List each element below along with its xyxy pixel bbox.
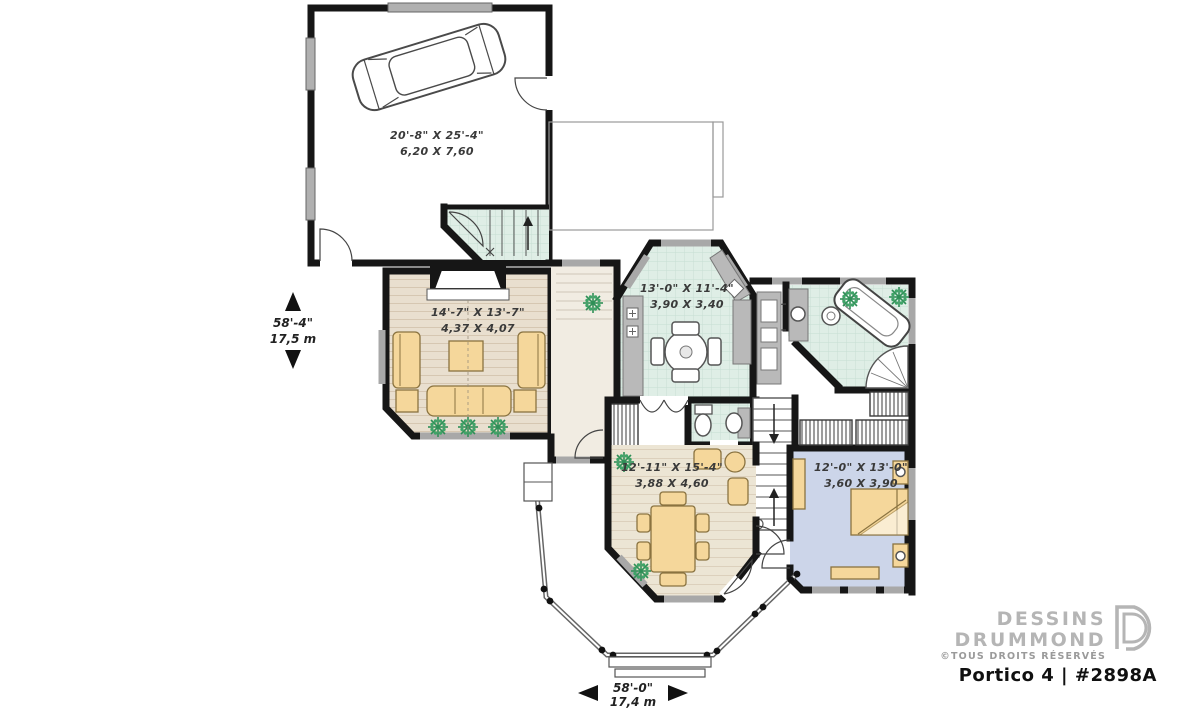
veranda-steps [609,657,711,667]
dining-dim-imperial: 12'-11" X 15'-4" [621,461,723,474]
living-dim-imperial: 14'-7" X 13'-7" [431,306,525,319]
kitchen-dim-imperial: 13'-0" X 11'-4" [640,282,734,295]
garage-window [306,38,315,90]
armchair [518,332,545,388]
entry-vestibule [444,207,549,262]
veranda-steps [615,669,705,677]
armchair [393,332,420,388]
bath-sink [791,307,805,321]
chair [696,514,709,532]
depth-imperial: 58'-4" [273,316,313,330]
side-table [396,390,418,412]
kitchen-counter [733,300,751,364]
patio-outline [549,122,723,230]
garage-side-door [320,229,352,261]
car-icon [349,20,510,114]
chair [660,492,686,505]
dimension-left: 58'-4" 17,5 m [270,292,316,369]
plan-title: Portico 4 | #2898A [959,665,1157,686]
bench [831,567,879,579]
dimension-arrow-icon [285,292,301,311]
toilet [695,405,712,436]
dining-dim-metric: 3,88 X 4,60 [635,477,709,490]
sofa [427,386,511,416]
chair [637,542,650,560]
plant-icon [583,293,603,313]
living-dim-metric: 4,37 X 4,07 [440,322,515,335]
plant-icon [488,417,508,437]
side-steps [524,463,552,501]
dimension-arrow-icon [668,685,688,701]
width-imperial: 58'-0" [613,681,653,695]
chair [660,573,686,586]
fireplace [427,264,509,300]
floor-plan-page: 20'-8" X 25'-4" 6,20 X 7,60 [0,0,1200,711]
lounge-chair [728,478,748,505]
round-side-table [725,452,745,472]
pedestal-sink [822,307,840,325]
bedroom-closet [800,392,908,445]
plant-icon [889,287,909,307]
bedroom-dim-imperial: 12'-0" X 13'-0" [814,461,908,474]
garage-door [388,3,492,12]
floor-plan-canvas: 20'-8" X 25'-4" 6,20 X 7,60 [0,0,1200,711]
width-metric: 17,4 m [610,695,656,709]
garage-house-door [515,78,547,110]
dimension-bottom: 58'-0" 17,4 m [578,681,688,709]
logo-rights: ©TOUS DROITS RÉSERVÉS [940,650,1106,662]
depth-metric: 17,5 m [270,332,316,346]
living-room: 14'-7" X 13'-7" 4,37 X 4,07 [382,264,551,437]
chair [651,338,664,365]
dimension-arrow-icon [578,685,598,701]
chair [672,322,699,335]
bed [851,489,908,535]
drummond-d-icon [1117,607,1149,649]
bedroom-dim-metric: 3,60 X 3,90 [824,477,898,490]
garage-dim-metric: 6,20 X 7,60 [400,145,474,158]
chair [672,369,699,382]
nightstand [893,544,908,567]
logo-line1: DESSINS [997,608,1106,630]
chair [637,514,650,532]
chair [696,542,709,560]
chair [708,338,721,365]
coffee-table [449,341,483,371]
side-table [514,390,536,412]
plant-icon [631,561,651,581]
dresser [793,459,805,509]
company-logo: DESSINS DRUMMOND ©TOUS DROITS RÉSERVÉS P… [940,607,1157,686]
dimension-arrow-icon [285,350,301,369]
pantry-shelves [757,292,781,384]
logo-line2: DRUMMOND [955,629,1106,651]
plant-icon [428,417,448,437]
garage-window [306,168,315,220]
plant-icon [840,289,860,309]
kitchen-dim-metric: 3,90 X 3,40 [650,298,724,311]
dining-table [651,506,695,572]
garage-dim-imperial: 20'-8" X 25'-4" [390,129,484,142]
